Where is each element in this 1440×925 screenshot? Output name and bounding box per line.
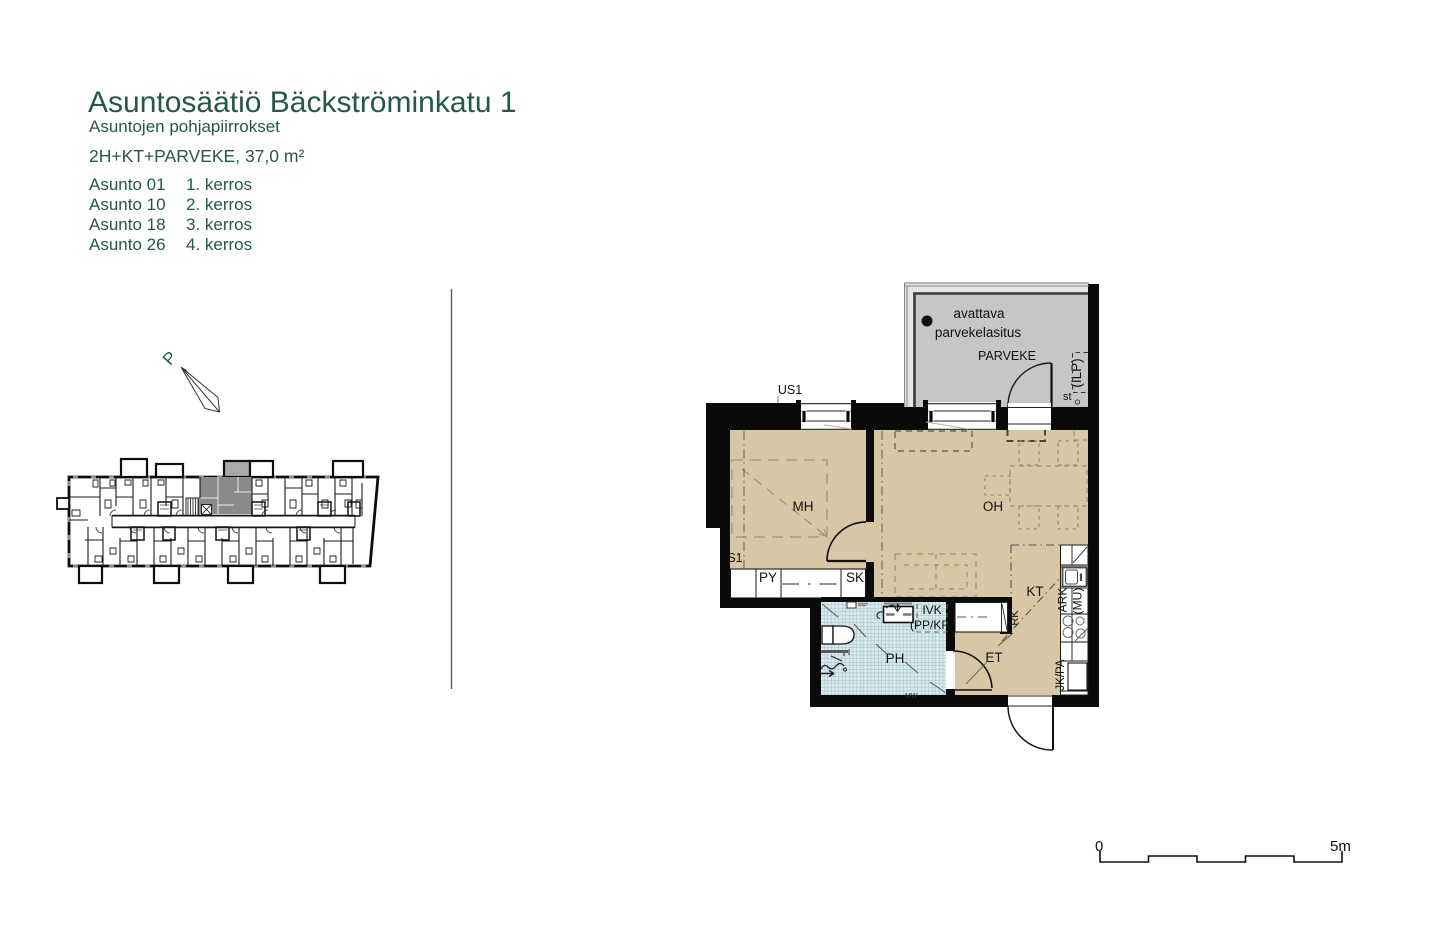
svg-text:(PP/KR: (PP/KR: [910, 618, 950, 632]
svg-text:Asunto 01: Asunto 01: [89, 175, 166, 194]
svg-text:JK/PA: JK/PA: [1055, 659, 1067, 690]
svg-text:Asunto 26: Asunto 26: [89, 235, 166, 254]
svg-text:PY: PY: [759, 570, 777, 585]
svg-text:3. kerros: 3. kerros: [186, 215, 252, 234]
svg-text:(ILP): (ILP): [1069, 358, 1084, 387]
svg-text:1. kerros: 1. kerros: [186, 175, 252, 194]
svg-text:ET: ET: [985, 650, 1002, 665]
svg-text:4. kerros: 4. kerros: [186, 235, 252, 254]
svg-text:PH: PH: [886, 651, 905, 666]
svg-text:RK: RK: [1009, 610, 1021, 626]
svg-text:IVK: IVK: [922, 603, 941, 617]
svg-text:MW: MW: [905, 693, 918, 700]
svg-text:0: 0: [1095, 838, 1103, 855]
svg-text:2. kerros: 2. kerros: [186, 195, 252, 214]
svg-text:Asuntojen pohjapiirrokset: Asuntojen pohjapiirrokset: [89, 117, 280, 136]
svg-text:Asuntosäätiö Bäckströminkatu 1: Asuntosäätiö Bäckströminkatu 1: [88, 86, 517, 119]
svg-text:PARVEKE: PARVEKE: [978, 349, 1036, 363]
svg-text:US1: US1: [778, 383, 802, 397]
svg-text:SK: SK: [846, 570, 864, 585]
svg-text:OH: OH: [983, 499, 1003, 514]
svg-text:avattava: avattava: [953, 306, 1005, 321]
svg-text:S1: S1: [727, 551, 742, 565]
svg-text:2H+KT+PARVEKE, 37,0 m²: 2H+KT+PARVEKE, 37,0 m²: [89, 146, 304, 166]
svg-text:Asunto 18: Asunto 18: [89, 215, 166, 234]
svg-text:KT: KT: [1026, 584, 1043, 599]
svg-text:MH: MH: [793, 499, 814, 514]
svg-text:Asunto 10: Asunto 10: [89, 195, 166, 214]
svg-text:(MU): (MU): [1071, 588, 1085, 615]
svg-text:parvekelasitus: parvekelasitus: [935, 325, 1022, 340]
svg-text:5m: 5m: [1330, 838, 1351, 855]
svg-text:ARK: ARK: [1056, 588, 1070, 613]
svg-text:st: st: [1063, 391, 1072, 403]
